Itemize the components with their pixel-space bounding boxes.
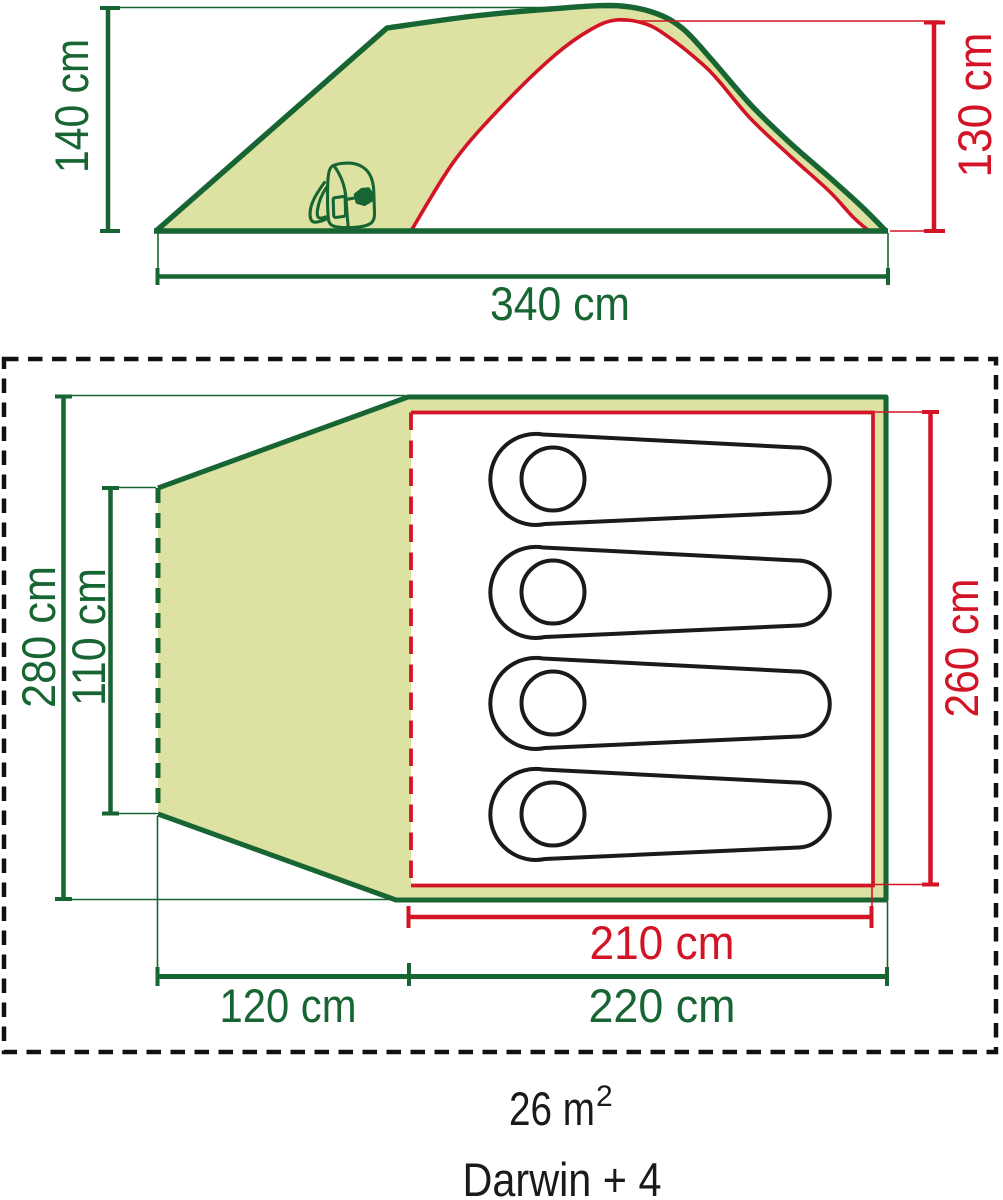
svg-text:340 cm: 340 cm — [490, 277, 630, 330]
svg-text:220 cm: 220 cm — [589, 979, 736, 1032]
svg-text:110 cm: 110 cm — [62, 568, 115, 706]
svg-text:260 cm: 260 cm — [935, 579, 988, 718]
svg-text:26 m2: 26 m2 — [509, 1080, 613, 1135]
svg-text:Darwin + 4: Darwin + 4 — [463, 1153, 662, 1200]
svg-text:120 cm: 120 cm — [220, 979, 357, 1032]
svg-text:280 cm: 280 cm — [12, 566, 65, 708]
svg-text:130 cm: 130 cm — [948, 33, 1001, 178]
svg-text:140 cm: 140 cm — [45, 39, 98, 173]
svg-text:210 cm: 210 cm — [590, 916, 735, 969]
